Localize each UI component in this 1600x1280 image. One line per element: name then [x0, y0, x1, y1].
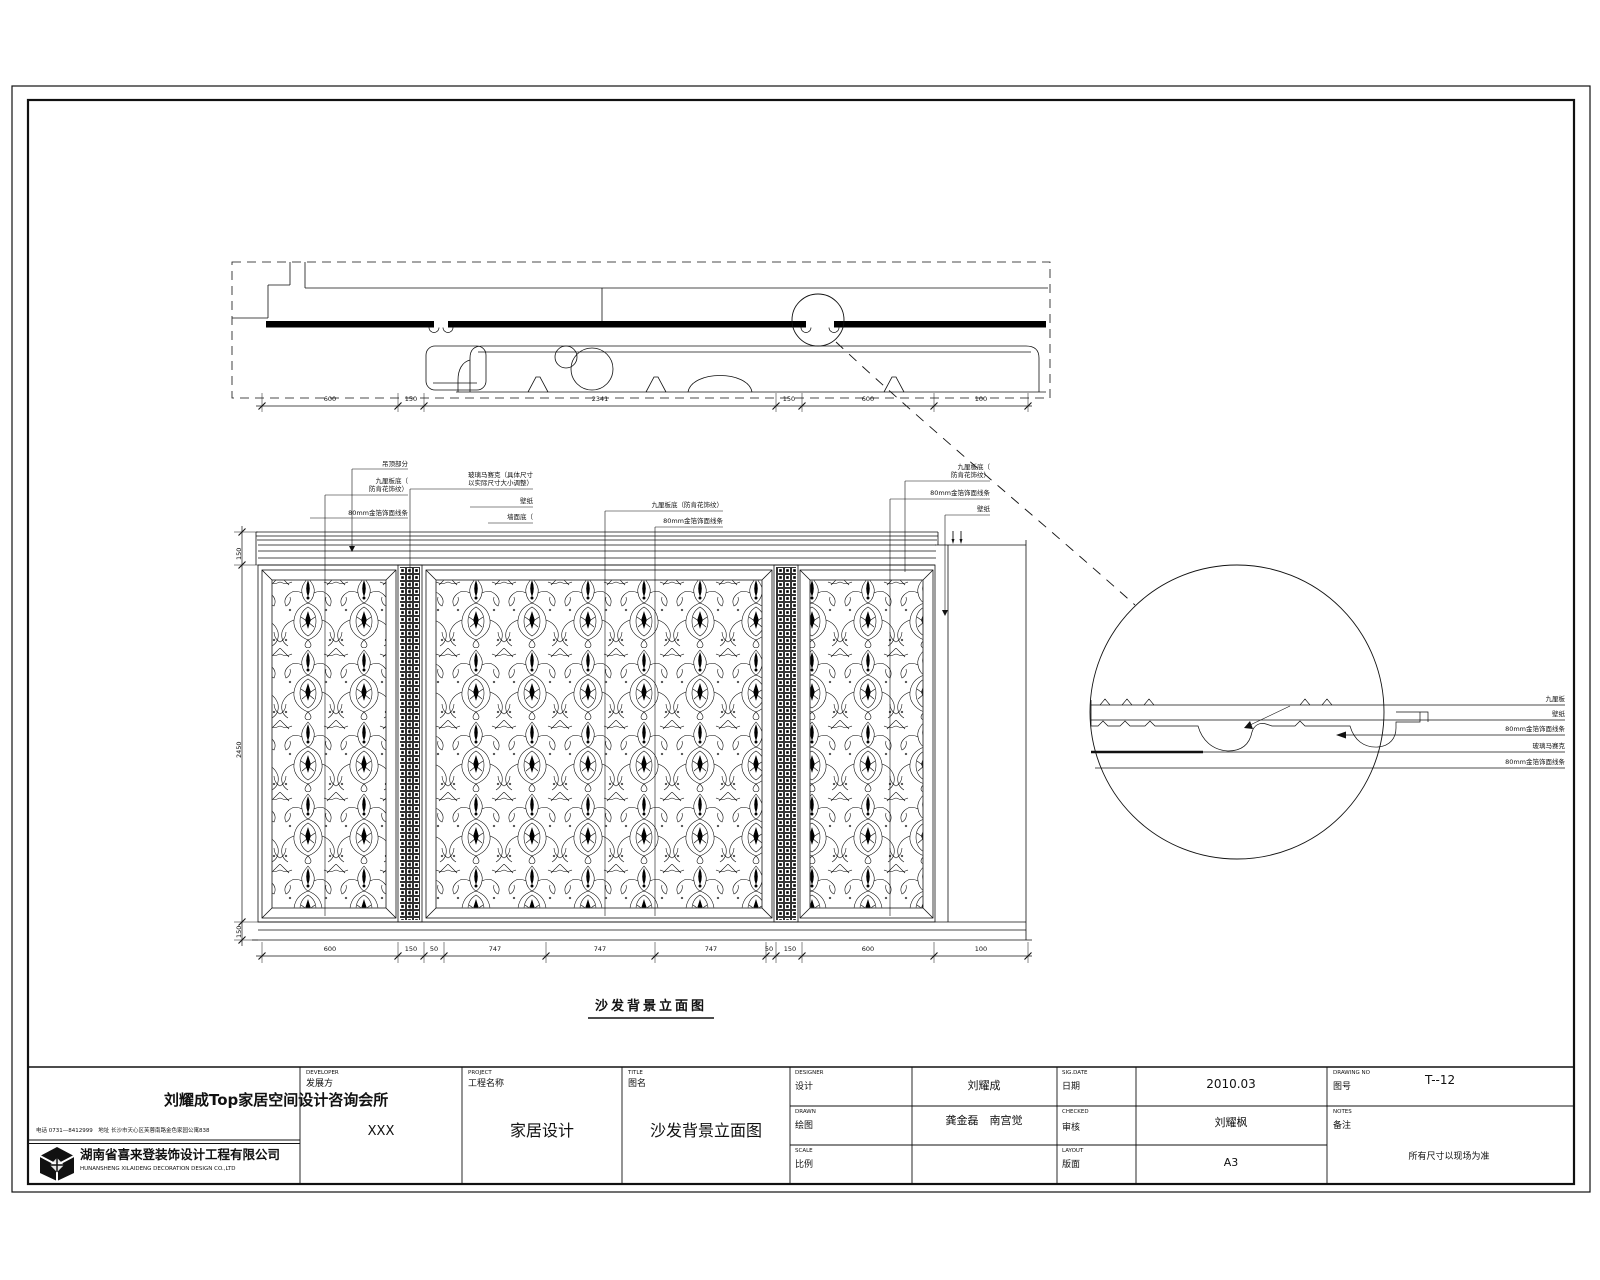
tb-title-label: 图名: [628, 1079, 646, 1089]
tb-layout-en: LAYOUT: [1062, 1148, 1083, 1154]
tb-checked-value: 刘耀枫: [1215, 1117, 1248, 1129]
plan-view: [232, 262, 1050, 398]
tb-drawing-no-value: T--12: [1425, 1074, 1455, 1087]
elevation-mosaic-strip-2: [774, 565, 798, 922]
drawing-caption: 沙发背景立面图: [595, 1000, 707, 1015]
elevation-left-panel: [262, 570, 396, 918]
company-name: 刘耀成Top家居空间设计咨询会所: [164, 1092, 388, 1109]
detail-label-wallpaper: 壁纸: [1552, 711, 1565, 718]
tb-checked-en: CHECKED: [1062, 1109, 1089, 1115]
tb-project-label: 工程名称: [468, 1079, 504, 1089]
elev-dim-4: 747: [489, 946, 501, 953]
detail-label-mosaic: 玻璃马赛克: [1533, 743, 1566, 750]
elev-label-mosaic-b: 以实际尺寸大小调整）: [468, 480, 533, 487]
elevation-view: [252, 531, 1032, 940]
detail-label-goldline-1: 80mm金箔饰面线条: [1505, 726, 1565, 733]
plan-detail-callout-circle: [792, 294, 844, 346]
tb-drawn-value: 龚金磊 南宫觉: [946, 1115, 1023, 1127]
tb-developer-value: XXX: [368, 1125, 395, 1140]
elev-left-dim-1: 150: [236, 548, 243, 560]
plan-dim-6: 100: [975, 396, 987, 403]
tb-developer-en: DEVELOPER: [306, 1070, 339, 1076]
tb-title-value: 沙发背景立面图: [650, 1122, 762, 1140]
elev-dim-3: 50: [430, 946, 438, 953]
tb-notes-en: NOTES: [1333, 1109, 1352, 1115]
elev-label-wallpaper-2: 壁纸: [977, 506, 990, 513]
tb-drawing-no-label: 图号: [1333, 1082, 1351, 1092]
elev-dim-6: 747: [705, 946, 717, 953]
elevation-right-panel: [800, 570, 933, 918]
tb-date-value: 2010.03: [1206, 1078, 1256, 1091]
elevation-plain-section: [935, 531, 1026, 940]
company-contact: 电话 0731—8412999 地址 长沙市天心区芙蓉南路金色家园公寓838: [36, 1128, 210, 1134]
plan-sofa: [426, 346, 1046, 392]
plan-dim-2: 150: [405, 396, 417, 403]
elev-dim-1: 600: [324, 946, 336, 953]
plan-dim-5: 600: [862, 396, 874, 403]
tb-drawn-label: 绘图: [795, 1121, 813, 1131]
tb-drawn-en: DRAWN: [795, 1109, 816, 1115]
sheet-border: [12, 86, 1590, 1192]
elev-label-goldline-1: 80mm金箔饰面线条: [348, 510, 408, 517]
elev-label-board-2: 九厘板底（防肯花饰纹）: [652, 502, 724, 509]
elev-dim-10: 100: [975, 946, 987, 953]
elev-label-wallbase: 墙面底（: [507, 514, 533, 521]
drawing-sheet: 刘耀成Top家居空间设计咨询会所 电话 0731—8412999 地址 长沙市天…: [0, 0, 1600, 1280]
elev-label-wallpaper-1: 壁纸: [520, 498, 533, 505]
detail-view: [1090, 565, 1565, 859]
elev-label-board-1b: 防肯花饰纹）: [369, 486, 408, 493]
tb-project-en: PROJECT: [468, 1070, 492, 1076]
elev-label-board-3b: 防肯花饰纹）: [951, 472, 990, 479]
tb-date-en: SIG.DATE: [1062, 1070, 1087, 1076]
tb-notes-label: 备注: [1333, 1121, 1351, 1131]
detail-label-board: 九厘板: [1546, 696, 1566, 703]
plan-dim-3: 2341: [592, 396, 609, 403]
tb-date-label: 日期: [1062, 1082, 1080, 1092]
tb-drawing-no-en: DRAWING NO: [1333, 1070, 1370, 1076]
detail-label-goldline-2: 80mm金箔饰面线条: [1505, 759, 1565, 766]
tb-title-en: TITLE: [628, 1070, 643, 1076]
company-firm-en: HUNANSHENG XILAIDENG DECORATION DESIGN C…: [80, 1166, 235, 1172]
tb-scale-label: 比例: [795, 1160, 813, 1170]
tb-project-value: 家居设计: [510, 1122, 574, 1140]
tb-developer-label: 发展方: [306, 1079, 333, 1089]
elev-left-dim-3: 150: [236, 926, 243, 938]
tb-layout-label: 版面: [1062, 1160, 1080, 1170]
elev-left-dim-2: 2450: [236, 741, 243, 758]
tb-layout-value: A3: [1224, 1157, 1239, 1169]
tb-notes-value: 所有尺寸以现场为准: [1408, 1152, 1489, 1162]
tb-checked-label: 审核: [1062, 1123, 1080, 1133]
elev-dim-7: 50: [765, 946, 773, 953]
tb-designer-value: 刘耀成: [968, 1080, 1001, 1092]
company-logo-cube-icon: [38, 1146, 76, 1182]
elev-label-ceiling: 吊顶部分: [382, 461, 408, 468]
plan-dim-1: 600: [324, 396, 336, 403]
elev-dim-9: 600: [862, 946, 874, 953]
tb-scale-en: SCALE: [795, 1148, 813, 1154]
elev-label-goldline-2: 80mm金箔饰面线条: [663, 518, 723, 525]
elev-dim-5: 747: [594, 946, 606, 953]
plan-wall-band: [266, 321, 1046, 333]
tb-designer-en: DESIGNER: [795, 1070, 824, 1076]
plan-dim-4: 150: [783, 396, 795, 403]
elev-dim-8: 150: [784, 946, 796, 953]
elev-dim-2: 150: [405, 946, 417, 953]
company-firm: 湖南省喜来登装饰设计工程有限公司: [80, 1148, 280, 1162]
elev-label-goldline-3: 80mm金箔饰面线条: [930, 490, 990, 497]
elevation-center-panel: [426, 570, 772, 918]
tb-designer-label: 设计: [795, 1082, 813, 1092]
